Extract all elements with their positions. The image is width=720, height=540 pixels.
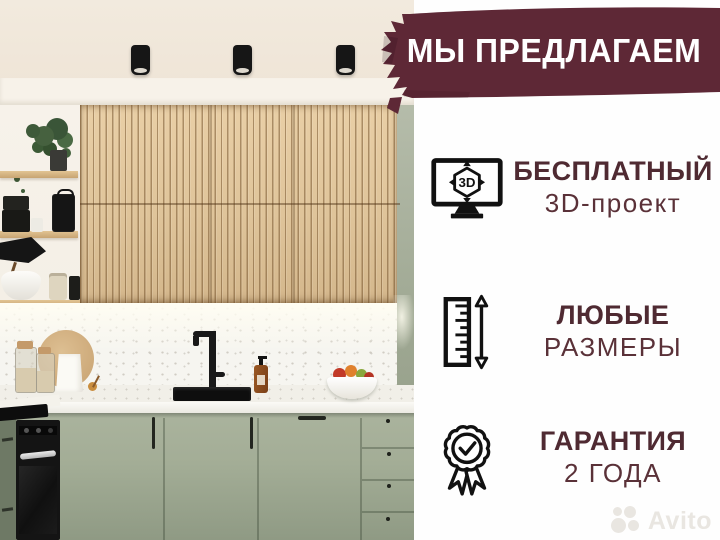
feature-title: ЛЮБЫЕ [510,300,716,331]
feature-subtitle: 2 ГОДА [510,457,716,491]
speaker-handle [57,189,74,197]
ceiling-spotlight [336,45,355,75]
drawer-seam [362,447,414,449]
feature-text: БЕСПЛАТНЫЙ 3D-проект [510,156,716,221]
glass-jar [15,347,37,393]
cabinet-seam [210,105,212,303]
cabinet-seam [293,105,295,303]
ruler-height-icon [424,294,510,370]
jar-cork-lid [17,341,33,349]
oven-door-glass [19,466,57,534]
jar-cork-lid [38,347,51,354]
avito-watermark: Avito [611,506,712,534]
door-seam [257,418,259,540]
cabinet-handle [152,417,155,449]
icon-3d-label: 3D [459,175,476,190]
feature-free-3d-project: 3D БЕСПЛАТНЫЙ 3D-проект [424,145,716,231]
monitor-3d-icon: 3D [424,155,510,221]
beige-canister [49,273,67,300]
feature-text: ЛЮБЫЕ РАЗМЕРЫ [510,300,716,365]
bottle-pump-spout [258,356,267,359]
paper-bag [56,354,83,392]
drawer-knob [386,517,390,521]
feature-any-sizes: ЛЮБЫЕ РАЗМЕРЫ [424,289,716,375]
avito-logo-icon [611,506,643,534]
potted-plant [26,124,40,138]
ceiling-spotlight [233,45,252,75]
drawer-knob [387,452,391,456]
drawer-knob [387,484,391,488]
feature-text: ГАРАНТИЯ 2 ГОДА [510,426,716,491]
oven-knobs [24,428,29,433]
faucet [209,331,216,391]
feature-subtitle: РАЗМЕРЫ [510,331,716,365]
drawer-knob [386,419,390,423]
faucet-handle [216,372,225,377]
counter-shadow [0,413,414,418]
feature-title: БЕСПЛАТНЫЙ [510,156,716,187]
door-seam [163,418,165,540]
small-bowl [31,218,43,232]
drawer-seam [362,511,414,513]
faucet-tip [193,336,199,346]
ceiling-soffit [0,78,414,105]
glass-jar [36,353,55,393]
drawer-seam [362,479,414,481]
black-sink [173,387,251,401]
bottle-label [257,375,265,385]
wood-shelf [0,171,78,178]
feature-title: ГАРАНТИЯ [510,426,716,457]
cabinet-seam [80,203,400,205]
warranty-badge-icon [424,419,510,497]
avito-watermark-text: Avito [648,509,712,534]
feature-subtitle: 3D-проект [510,187,716,221]
canister [2,210,30,232]
cabinet-handle [250,417,253,449]
advertisement-canvas: 3D БЕСПЛАТНЫЙ 3D-проект [0,0,720,540]
black-canister [69,276,80,300]
banner-title: МЫ ПРЕДЛАГАЕМ [401,28,708,74]
black-speaker [52,194,75,232]
kitchen-photo [0,0,414,540]
ceiling-spotlight [131,45,150,75]
plant-pot [50,150,67,171]
canister [3,196,29,210]
lower-cabinets [0,413,414,540]
side-drawers [0,413,16,540]
wood-shelf [0,231,78,238]
feature-warranty: ГАРАНТИЯ 2 ГОДА [424,415,716,501]
